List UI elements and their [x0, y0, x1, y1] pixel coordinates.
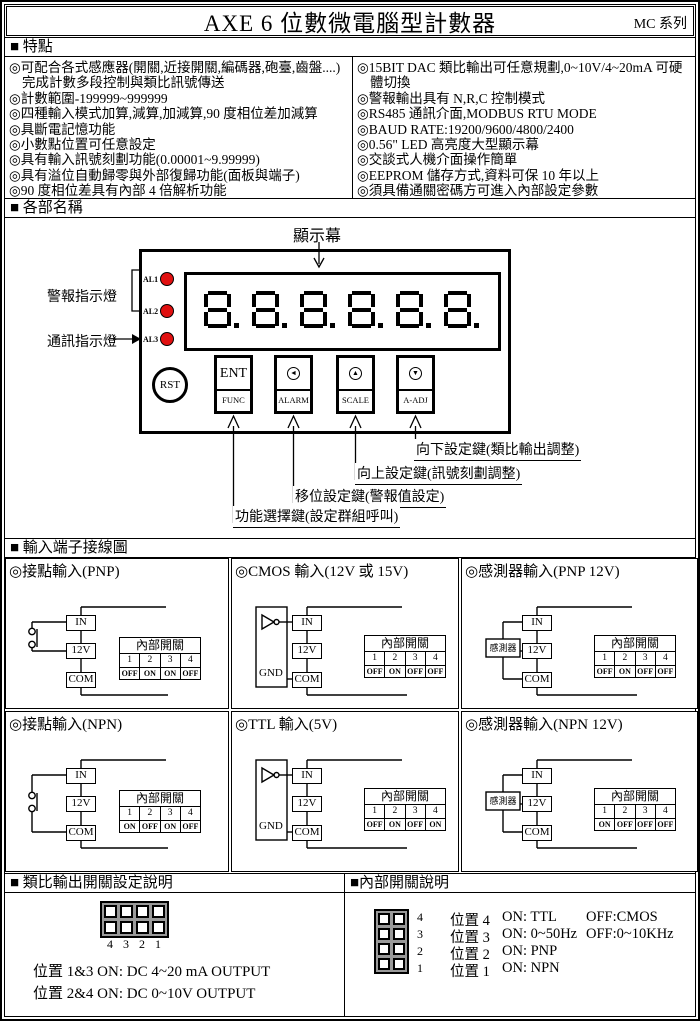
switch-table-header: 內部開關 — [595, 636, 675, 652]
feature-item: ◎90 度相位差具有內部 4 倍解析功能 — [9, 183, 348, 198]
switch-table-header: 內部開關 — [120, 791, 200, 807]
feature-item: ◎交談式人機介面操作簡單 — [357, 152, 691, 167]
internal-pin-number: 4 — [417, 910, 423, 925]
reset-button: RST — [152, 367, 188, 403]
left-arrow-icon: ◄ — [287, 367, 300, 380]
seven-segment-digits — [204, 291, 482, 328]
terminal-12v: 12V — [66, 796, 96, 812]
terminal-12v: 12V — [292, 643, 322, 659]
feature-item: ◎具有溢位自動歸零與外部復歸功能(面板與端子) — [9, 168, 348, 183]
alarm2-led — [160, 304, 174, 318]
terminal-com: COM — [66, 672, 96, 688]
seven-segment-digit — [204, 291, 242, 328]
internal-switch-row: 位置 1ON: NPN — [450, 960, 586, 981]
internal-switch-table: 內部開關 1234 ONOFFOFFOFF — [594, 788, 676, 831]
terminal-12v: 12V — [66, 643, 96, 659]
wiring-cell-contact-pnp: ◎接點輸入(PNP) IN 12V COM 內部開關 1234 OFFONONO… — [5, 558, 229, 709]
display-screen-label: 顯示幕 — [293, 222, 341, 246]
alarm-indicator-label: 警報指示燈 — [47, 286, 117, 306]
feature-item: ◎警報輸出具有 N,R,C 控制模式 — [357, 91, 691, 106]
terminal-com: COM — [522, 825, 552, 841]
shift-key-label: 移位設定鍵(警報值設定) — [293, 486, 446, 508]
feature-item: ◎15BIT DAC 類比輸出可任意規劃,0~10V/4~20mA 可硬體切換 — [357, 60, 691, 91]
terminal-12v: 12V — [292, 796, 322, 812]
feature-item: ◎RS485 通訊介面,MODBUS RTU MODE — [357, 106, 691, 121]
feature-item: ◎四種輸入模式加算,減算,加減算,90 度相位差加減算 — [9, 106, 348, 121]
sensor-label: 感測器 — [486, 640, 520, 656]
internal-jumper-block — [374, 909, 409, 974]
internal-switch-section: ■內部開關說明 4 3 2 1 位置 4ON: TTLOFF:CMOS 位置 3… — [344, 873, 696, 1017]
feature-item: ◎計數範圍-199999~999999 — [9, 91, 348, 106]
device-diagram: 顯示幕 AL1 AL2 AL3 警報指示燈 通訊指示燈 RST ENT FUNC… — [4, 217, 696, 539]
alarm-button: ◄ ALARM — [274, 355, 313, 414]
feature-item: ◎可配合各式感應器(開關,近接開關,編碼器,砲臺,齒盤....) 完成計數多段控… — [9, 60, 348, 91]
analog-setting-line: 位置 2&4 ON: DC 0~10V OUTPUT — [33, 982, 255, 1003]
feature-item: ◎具斷電記憶功能 — [9, 122, 348, 137]
feature-item: ◎BAUD RATE:19200/9600/4800/2400 — [357, 122, 691, 137]
scale-button: ▲ SCALE — [336, 355, 375, 414]
terminal-com: COM — [292, 672, 322, 688]
terminal-in: IN — [292, 768, 322, 784]
func-label: FUNC — [217, 389, 250, 411]
terminal-in: IN — [292, 615, 322, 631]
led-label-al2: AL2 — [143, 307, 159, 316]
seven-segment-digit — [300, 291, 338, 328]
features-right-column: ◎15BIT DAC 類比輸出可任意規劃,0~10V/4~20mA 可硬體切換 … — [353, 57, 695, 198]
page-title: AXE 6 位數微電腦型計數器 — [204, 4, 496, 38]
switch-table-header: 內部開關 — [365, 789, 445, 805]
feature-item: ◎EEPROM 儲存方式,資料可保 10 年以上 — [357, 168, 691, 183]
terminal-12v: 12V — [522, 643, 552, 659]
analog-jumper-block — [100, 901, 169, 938]
sensor-label: 感測器 — [486, 793, 520, 809]
analog-setting-line: 位置 1&3 ON: DC 4~20 mA OUTPUT — [33, 960, 270, 981]
terminal-in: IN — [522, 768, 552, 784]
feature-item: ◎須具備通關密碼方可進入內部設定參數 — [357, 183, 691, 198]
wiring-cell-cmos: ◎CMOS 輸入(12V 或 15V) GND IN 12V COM 內部開關 … — [231, 558, 459, 709]
internal-switch-table: 內部開關 1234 ONOFFONOFF — [119, 790, 201, 833]
wiring-cell-contact-npn: ◎接點輸入(NPN) IN 12V COM 內部開關 1234 ONOFFONO… — [5, 711, 229, 872]
wiring-grid: ◎接點輸入(PNP) IN 12V COM 內部開關 1234 OFFONONO… — [4, 557, 696, 874]
internal-switch-table: 內部開關 1234 OFFONOFFOFF — [364, 635, 446, 678]
device-section-header: ■ 各部名稱 — [4, 198, 696, 218]
led-label-al3: AL3 — [143, 335, 159, 344]
wiring-cell-sensor-pnp: ◎感測器輸入(PNP 12V) 感測器 IN 12V COM 內部開關 1234… — [461, 558, 698, 709]
terminal-com: COM — [292, 825, 322, 841]
feature-item: ◎0.56" LED 高亮度大型顯示幕 — [357, 137, 691, 152]
feature-item: ◎小數點位置可任意設定 — [9, 137, 348, 152]
led-label-al1: AL1 — [143, 275, 159, 284]
wiring-lines — [462, 559, 686, 708]
wiring-cell-ttl: ◎TTL 輸入(5V) GND IN 12V COM 內部開關 1234 OFF… — [231, 711, 459, 872]
series-label: MC 系列 — [634, 13, 687, 33]
terminal-in: IN — [66, 615, 96, 631]
switch-table-header: 內部開關 — [120, 638, 200, 654]
internal-switch-table: 內部開關 1234 OFFONONOFF — [119, 637, 201, 680]
features-left-column: ◎可配合各式感應器(開關,近接開關,編碼器,砲臺,齒盤....) 完成計數多段控… — [5, 57, 353, 198]
up-key-label: 向上設定鍵(訊號刻劃調整) — [355, 463, 522, 485]
gnd-label: GND — [259, 667, 283, 679]
internal-pin-number: 2 — [417, 944, 423, 959]
down-arrow-icon: ▼ — [409, 367, 422, 380]
up-arrow-icon: ▲ — [349, 367, 362, 380]
datasheet-page: AXE 6 位數微電腦型計數器 MC 系列 ■ 特點 ◎可配合各式感應器(開關,… — [0, 0, 700, 1021]
seven-segment-digit — [348, 291, 386, 328]
seven-segment-digit — [396, 291, 434, 328]
wiring-cell-sensor-npn: ◎感測器輸入(NPN 12V) 感測器 IN 12V COM 內部開關 1234… — [461, 711, 698, 872]
a-adj-button: ▼ A-ADJ — [396, 355, 435, 414]
wiring-section-header: ■ 輸入端子接線圖 — [4, 538, 696, 558]
wiring-lines — [6, 559, 229, 708]
seven-segment-digit — [252, 291, 290, 328]
wiring-lines — [232, 559, 456, 708]
a-adj-label: A-ADJ — [399, 389, 432, 411]
analog-section-header: ■ 類比輸出開關設定說明 — [4, 873, 345, 893]
internal-pin-number: 3 — [417, 927, 423, 942]
gnd-label: GND — [259, 820, 283, 832]
internal-section-header: ■內部開關說明 — [344, 873, 696, 893]
seven-segment-digit — [444, 291, 482, 328]
switch-table-header: 內部開關 — [365, 636, 445, 652]
alarm-label: ALARM — [277, 389, 310, 411]
feature-item: ◎具有輸入訊號刻劃功能(0.00001~9.99999) — [9, 152, 348, 167]
comm-led — [160, 332, 174, 346]
scale-label: SCALE — [339, 389, 372, 411]
terminal-12v: 12V — [522, 796, 552, 812]
internal-pin-number: 1 — [417, 961, 423, 976]
title-bar: AXE 6 位數微電腦型計數器 MC 系列 — [4, 4, 696, 38]
bottom-sections: ■ 類比輸出開關設定說明 4321 位置 1&3 ON: DC 4~20 mA … — [4, 873, 696, 1017]
analog-output-section: ■ 類比輸出開關設定說明 4321 位置 1&3 ON: DC 4~20 mA … — [4, 873, 345, 1017]
down-key-label: 向下設定鍵(類比輸出調整) — [414, 439, 581, 461]
terminal-in: IN — [522, 615, 552, 631]
alarm1-led — [160, 272, 174, 286]
features-section-header: ■ 特點 — [4, 37, 696, 57]
terminal-in: IN — [66, 768, 96, 784]
internal-switch-table: 內部開關 1234 OFFONOFFOFF — [594, 635, 676, 678]
terminal-com: COM — [522, 672, 552, 688]
terminal-com: COM — [66, 825, 96, 841]
analog-pin-numbers: 4321 — [102, 937, 166, 952]
switch-table-header: 內部開關 — [595, 789, 675, 805]
internal-switch-table: 內部開關 1234 OFFONOFFON — [364, 788, 446, 831]
features-box: ◎可配合各式感應器(開關,近接開關,編碼器,砲臺,齒盤....) 完成計數多段控… — [4, 56, 696, 199]
ent-label: ENT — [217, 358, 250, 389]
func-key-label: 功能選擇鍵(設定群組呼叫) — [233, 506, 400, 528]
ent-func-button: ENT FUNC — [214, 355, 253, 414]
comm-indicator-label: 通訊指示燈 — [47, 331, 117, 351]
